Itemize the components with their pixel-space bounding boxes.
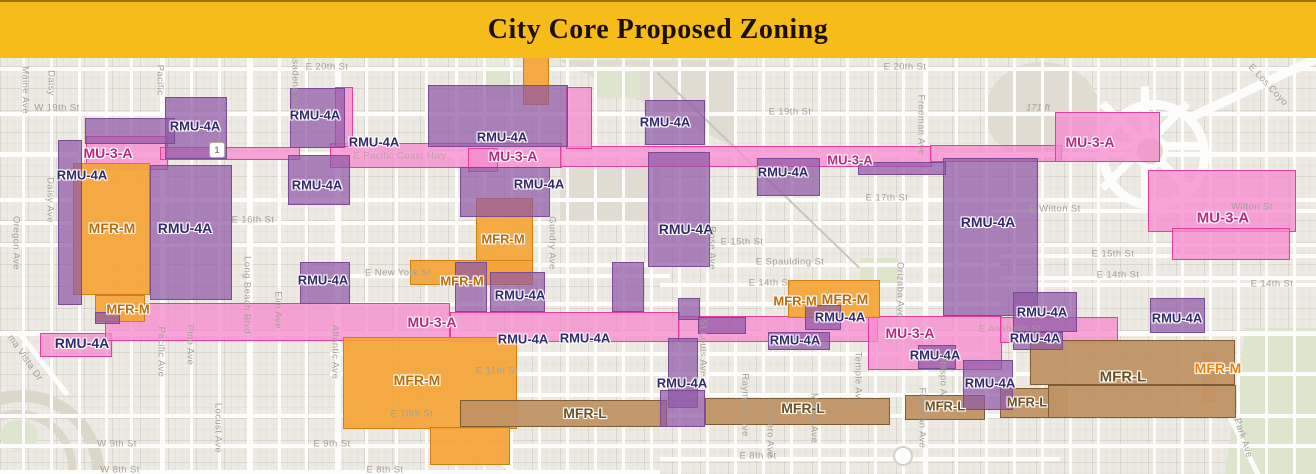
street-horizontal	[0, 444, 1316, 448]
street-horizontal	[0, 470, 660, 474]
street-label: E Pacific Coast Hwy	[353, 151, 446, 162]
zone-label-rmu-4a: RMU-4A	[758, 166, 809, 179]
zone-label-rmu-4a: RMU-4A	[158, 221, 212, 235]
zone-label-rmu-4a: RMU-4A	[349, 136, 400, 149]
street-label: Maine Ave	[20, 66, 31, 114]
screenshot-root: RMU-4ARMU-4ARMU-4ARMU-4ARMU-4ARMU-4ARMU-…	[0, 0, 1316, 474]
street-label: Long Beach Blvd	[242, 256, 253, 334]
zone-label-rmu-4a: RMU-4A	[55, 336, 109, 350]
street-label: Elm Ave	[273, 291, 284, 328]
zone-label-rmu-4a: RMU-4A	[961, 215, 1015, 229]
street-label: E 14th St	[749, 278, 792, 289]
street-label: Oregon Ave	[11, 216, 22, 270]
street-label: W 9th St	[97, 439, 137, 450]
zone-label-mu-3-a: MU-3-A	[1066, 135, 1115, 149]
zone-rmu-4a[interactable]	[58, 140, 82, 305]
street-label: E 8th St	[367, 465, 404, 474]
zone-label-mfr-l: MFR-L	[1007, 396, 1047, 409]
street-label: E Anaheim St	[979, 324, 1041, 335]
zone-label-mfr-m: MFR-M	[773, 295, 816, 308]
street-label: E 10th St	[391, 409, 434, 420]
elevation-marker: 171 ft	[1026, 103, 1050, 114]
street-label: Orizaba Ave	[895, 262, 906, 318]
zone-label-mfr-m: MFR-M	[89, 221, 136, 235]
city-block	[560, 168, 660, 222]
street-label: Gundry Ave	[547, 216, 558, 269]
zoning-map[interactable]: RMU-4ARMU-4ARMU-4ARMU-4ARMU-4ARMU-4ARMU-…	[0, 0, 1316, 474]
zone-mfr-m[interactable]	[430, 427, 510, 465]
zone-label-mu-3-a: MU-3-A	[84, 146, 133, 160]
street-label: Rose Ave	[707, 226, 718, 270]
zone-label-mu-3-a: MU-3-A	[489, 149, 538, 163]
zone-rmu-4a[interactable]	[460, 167, 550, 217]
street-label: W 8th St	[100, 465, 140, 474]
street-vertical	[50, 56, 53, 474]
zone-label-rmu-4a: RMU-4A	[170, 120, 221, 133]
zone-label-rmu-4a: RMU-4A	[477, 131, 528, 144]
street-label: E 16th St	[232, 215, 275, 226]
street-label: Daisy Ave	[45, 177, 56, 223]
street-label: E 14th St	[1097, 270, 1140, 281]
street-label: E 14th St	[1251, 279, 1294, 290]
zone-label-mfr-l: MFR-L	[563, 406, 607, 420]
street-vertical	[22, 56, 25, 474]
street-label: E 15th St	[721, 237, 764, 248]
mini-roundabout	[893, 446, 913, 466]
zone-label-rmu-4a: RMU-4A	[815, 311, 866, 324]
street-vertical	[1293, 56, 1296, 474]
zone-rmu-4a[interactable]	[648, 152, 710, 267]
zone-label-rmu-4a: RMU-4A	[659, 222, 713, 236]
zone-label-rmu-4a: RMU-4A	[910, 349, 961, 362]
street-horizontal	[0, 67, 1316, 71]
street-label: St Louis Ave	[698, 319, 709, 376]
street-vertical	[278, 56, 281, 474]
street-label: Freeman Ave	[916, 95, 927, 156]
zone-label-mfr-m: MFR-M	[106, 303, 149, 316]
street-label: E 15th St	[1092, 249, 1135, 260]
street-label: E Spaulding St	[756, 257, 824, 268]
zone-rmu-4a[interactable]	[85, 118, 175, 144]
zone-mu-3-a[interactable]	[566, 87, 592, 149]
street-label: Freeman Ave	[917, 388, 928, 449]
street-label: Pacific Ave	[156, 327, 167, 378]
zone-label-mfr-m: MFR-M	[822, 292, 869, 306]
street-label: Locust Ave	[213, 403, 224, 453]
street-vertical	[1237, 56, 1240, 474]
zone-label-mu-3-a: MU-3-A	[408, 315, 457, 329]
zone-label-rmu-4a: RMU-4A	[657, 377, 708, 390]
street-label: E 11th St	[476, 366, 518, 377]
street-label: E Wilton St	[1029, 204, 1080, 215]
zone-label-rmu-4a: RMU-4A	[560, 332, 611, 345]
zone-rmu-4a[interactable]	[660, 390, 705, 427]
zone-label-rmu-4a: RMU-4A	[495, 289, 546, 302]
street-horizontal	[660, 457, 1060, 461]
street-label: E 17th St	[866, 193, 909, 204]
street-label: Pacific	[155, 65, 166, 96]
zone-label-rmu-4a: RMU-4A	[292, 179, 343, 192]
street-label: Wilton St	[1231, 202, 1273, 213]
zone-label-rmu-4a: RMU-4A	[1017, 306, 1068, 319]
street-label: Temple Ave	[853, 352, 864, 405]
zone-label-mfr-m: MFR-M	[1195, 361, 1242, 375]
zone-label-mfr-l: MFR-L	[1100, 370, 1147, 385]
page-title: City Core Proposed Zoning	[488, 14, 829, 46]
zone-label-rmu-4a: RMU-4A	[770, 334, 821, 347]
street-label: E 20th St	[884, 62, 927, 73]
street-label: E 9th St	[314, 439, 351, 450]
zone-label-rmu-4a: RMU-4A	[965, 377, 1016, 390]
highway-shield: 1	[209, 142, 225, 158]
zone-rmu-4a[interactable]	[612, 262, 644, 312]
zone-label-rmu-4a: RMU-4A	[498, 333, 549, 346]
street-label: E New York St	[365, 268, 431, 279]
zone-label-rmu-4a: RMU-4A	[640, 116, 691, 129]
street-label: Pine Ave	[185, 325, 196, 366]
zone-label-mu-3-a: MU-3-A	[1197, 211, 1250, 226]
zone-rmu-4a[interactable]	[678, 298, 700, 320]
zone-mfr-l[interactable]	[1048, 385, 1236, 418]
zone-mu-3-a[interactable]	[1172, 228, 1290, 260]
zone-label-mu-3-a: MU-3-A	[827, 154, 873, 167]
zone-label-mfr-m: MFR-M	[394, 373, 441, 387]
street-label: Junipero Ave	[765, 398, 776, 458]
street-label: E 19th St	[769, 107, 812, 118]
street-vertical	[1265, 56, 1268, 474]
zone-label-rmu-4a: RMU-4A	[514, 178, 565, 191]
zone-label-rmu-4a: RMU-4A	[1152, 312, 1203, 325]
street-label: Atlantic Ave	[330, 325, 341, 379]
street-label: Molino Ave	[809, 393, 820, 443]
zone-label-mfr-m: MFR-M	[481, 233, 524, 246]
street-label: Daisy	[46, 70, 57, 96]
street-label: W 19th St	[34, 103, 79, 114]
street-label: Obispo Ave	[938, 354, 949, 406]
street-label: E 20th St	[306, 62, 349, 73]
zone-label-mu-3-a: MU-3-A	[886, 326, 935, 340]
zone-label-mfr-m: MFR-M	[440, 275, 483, 288]
title-banner: City Core Proposed Zoning	[0, 0, 1316, 58]
zone-label-rmu-4a: RMU-4A	[57, 169, 108, 182]
street-label: Raymond Ave	[740, 373, 751, 436]
zone-label-rmu-4a: RMU-4A	[298, 274, 349, 287]
